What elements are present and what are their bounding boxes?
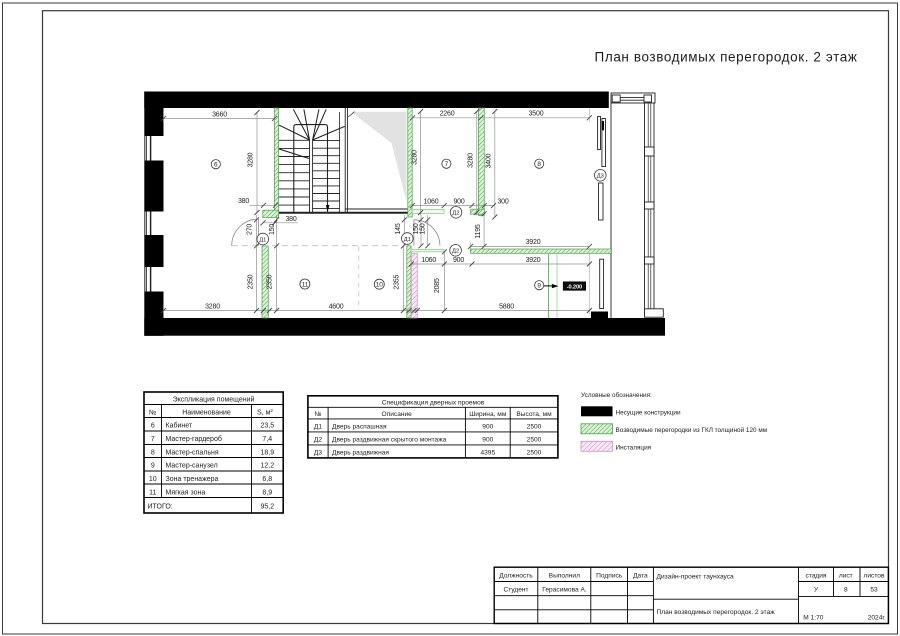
svg-text:3500: 3500 [529,110,544,117]
svg-text:Д2: Д2 [452,249,459,255]
svg-text:11: 11 [149,489,156,496]
svg-text:Высота, мм: Высота, мм [516,411,552,418]
svg-text:7: 7 [445,161,449,168]
svg-text:Д1: Д1 [404,237,411,243]
svg-text:8: 8 [537,161,541,168]
svg-text:1060: 1060 [421,257,436,264]
svg-text:3920: 3920 [526,257,541,264]
svg-text:2350: 2350 [267,274,274,289]
svg-text:95,2: 95,2 [260,504,274,511]
svg-text:Экспликация помещений: Экспликация помещений [173,395,255,403]
svg-text:2350: 2350 [247,274,254,289]
svg-text:2500: 2500 [527,449,542,456]
svg-text:Ширина, мм: Ширина, мм [469,411,507,418]
svg-text:3280: 3280 [467,153,474,168]
svg-text:Должность: Должность [499,573,533,580]
svg-text:Кабинет: Кабинет [166,422,193,430]
svg-text:2355: 2355 [394,275,401,290]
svg-text:Д1: Д1 [314,423,322,430]
svg-text:300: 300 [497,199,508,206]
svg-text:План возводимых перегородок. 2: План возводимых перегородок. 2 этаж [657,609,776,616]
svg-text:6: 6 [151,423,155,430]
svg-text:270: 270 [247,224,254,235]
svg-text:8,9: 8,9 [262,489,272,496]
svg-text:8: 8 [844,586,848,593]
svg-text:Дизайн-проект таунхауса: Дизайн-проект таунхауса [657,573,735,581]
svg-text:380: 380 [285,216,296,223]
svg-text:Инсталяция: Инсталяция [616,445,652,452]
svg-text:23,5: 23,5 [260,423,274,430]
svg-text:Д2: Д2 [452,211,459,217]
svg-text:1060: 1060 [424,199,439,206]
svg-text:11: 11 [302,281,309,288]
svg-text:3280: 3280 [412,150,419,165]
svg-text:145: 145 [395,223,402,234]
svg-text:Мастер-спальня: Мастер-спальня [166,449,219,456]
svg-text:Дата: Дата [633,573,648,580]
svg-text:900: 900 [482,423,493,430]
svg-text:№: № [314,411,321,418]
svg-text:2500: 2500 [527,436,542,443]
svg-text:4395: 4395 [480,449,495,456]
svg-text:Подпись: Подпись [596,573,623,580]
svg-text:-0.200: -0.200 [567,284,582,290]
svg-text:Условные обозначения:: Условные обозначения: [581,391,652,399]
svg-text:лист: лист [839,573,853,580]
svg-text:Зона тренажера: Зона тренажера [166,476,219,483]
svg-text:Герасимова А.: Герасимова А. [542,587,587,594]
svg-text:6,8: 6,8 [262,476,272,483]
svg-text:2500: 2500 [527,423,542,430]
svg-text:3280: 3280 [247,152,254,167]
svg-text:М 1:70: М 1:70 [803,615,823,622]
svg-text:3660: 3660 [212,112,227,119]
svg-text:Спецификация дверных проемов: Спецификация дверных проемов [382,400,485,407]
svg-text:Дверь раздвижная скрытого монт: Дверь раздвижная скрытого монтажа [332,436,447,443]
svg-text:3280: 3280 [205,304,220,311]
svg-text:53: 53 [870,586,878,593]
svg-text:150: 150 [269,224,276,235]
svg-text:6: 6 [214,162,218,169]
svg-text:900: 900 [453,257,464,264]
svg-text:10: 10 [149,476,157,483]
svg-text:18,9: 18,9 [260,449,274,456]
svg-text:1195: 1195 [475,224,482,239]
svg-text:Наименование: Наименование [182,409,231,416]
svg-text:Выполнил: Выполнил [549,573,580,580]
svg-text:2085: 2085 [434,278,441,293]
svg-text:Д1: Д1 [259,237,266,243]
svg-text:Несущие конструкции: Несущие конструкции [616,410,681,417]
svg-text:9: 9 [537,283,541,290]
svg-text:Мягкая зона: Мягкая зона [166,489,206,496]
svg-text:900: 900 [453,199,464,206]
svg-text:Студент: Студент [503,587,528,594]
svg-text:10: 10 [376,282,384,289]
svg-text:150: 150 [420,223,427,234]
svg-text:2024г.: 2024г. [868,615,886,622]
svg-text:8: 8 [151,449,155,456]
svg-text:Мастер-гардероб: Мастер-гардероб [166,435,222,443]
svg-text:Мастер-санузел: Мастер-санузел [166,463,218,470]
svg-text:4600: 4600 [329,304,344,311]
svg-text:3920: 3920 [526,239,541,246]
svg-text:Возводимые перегородки из ГКЛ: Возводимые перегородки из ГКЛ толщиной 1… [616,426,768,434]
svg-text:7,4: 7,4 [262,436,272,443]
svg-text:Д3: Д3 [314,449,322,456]
svg-text:2260: 2260 [440,110,455,117]
svg-text:Д3: Д3 [597,174,604,180]
svg-text:листов: листов [864,573,885,580]
svg-text:ИТОГО:: ИТОГО: [148,504,173,511]
svg-text:5880: 5880 [499,304,514,311]
svg-text:Описание: Описание [382,411,413,418]
svg-text:План возводимых перегородок. 2: План возводимых перегородок. 2 этаж [595,50,858,65]
svg-text:12,2: 12,2 [260,463,274,470]
svg-text:7: 7 [151,436,155,443]
svg-text:380: 380 [238,198,249,205]
svg-text:Дверь распашная: Дверь распашная [332,423,387,430]
svg-text:стадия: стадия [805,573,826,580]
svg-text:Дверь раздвижная: Дверь раздвижная [332,449,389,456]
svg-text:900: 900 [482,436,493,443]
svg-text:3400: 3400 [485,153,492,168]
svg-text:Д2: Д2 [314,436,322,443]
svg-text:№: № [149,409,157,416]
svg-text:9: 9 [151,463,155,470]
